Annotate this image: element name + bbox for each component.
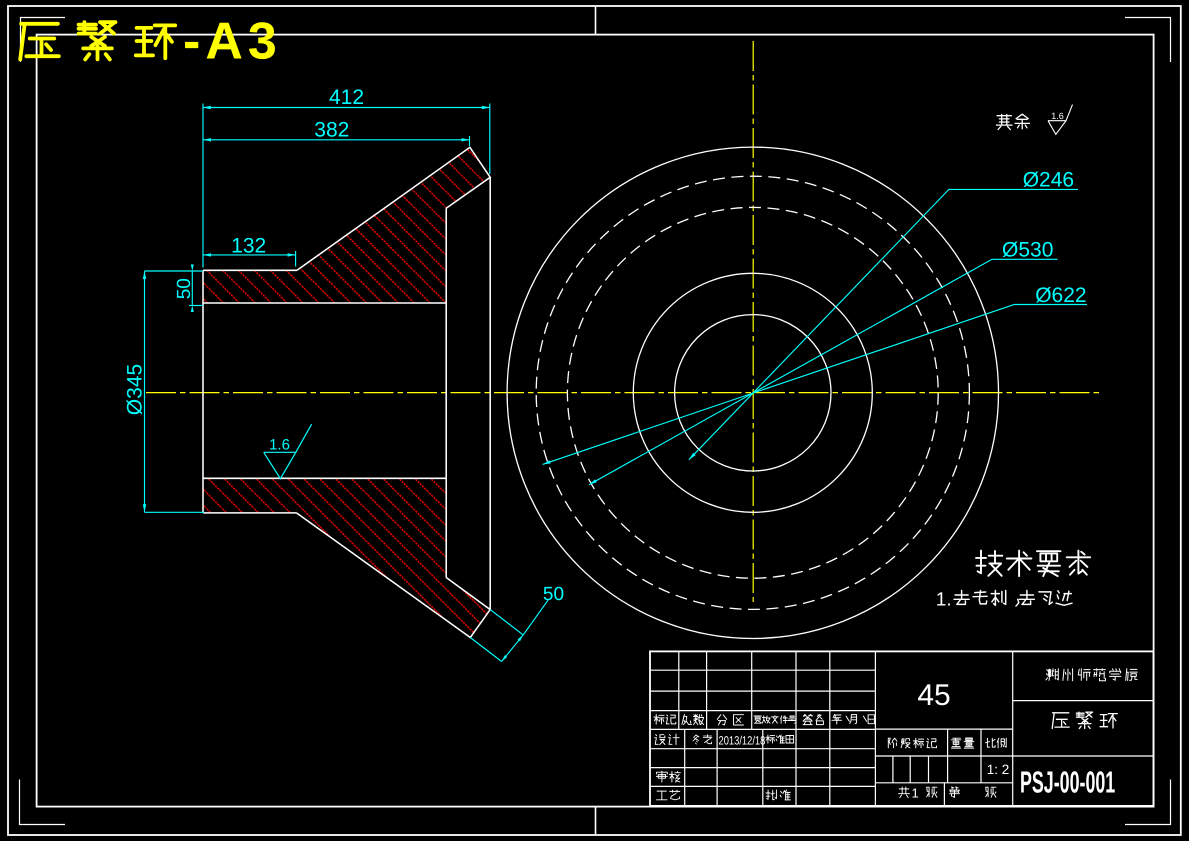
svg-text:2013/12/18: 2013/12/18 <box>719 734 766 748</box>
svg-text:1.6: 1.6 <box>269 437 290 454</box>
svg-text:1: 2: 1: 2 <box>987 762 1010 777</box>
svg-text:Ø246: Ø246 <box>1023 169 1074 192</box>
svg-text:Ø622: Ø622 <box>1035 284 1086 307</box>
svg-text:1.: 1. <box>936 590 952 611</box>
svg-text:Ø345: Ø345 <box>124 364 147 415</box>
svg-text:PSJ-00-001: PSJ-00-001 <box>1020 766 1115 800</box>
svg-text:50: 50 <box>174 278 195 299</box>
svg-text:45: 45 <box>917 679 950 712</box>
svg-text:382: 382 <box>314 119 349 142</box>
svg-text:50: 50 <box>543 584 564 605</box>
svg-text:1: 1 <box>912 786 919 801</box>
svg-text:132: 132 <box>231 235 266 258</box>
svg-text:Ø530: Ø530 <box>1002 239 1053 262</box>
svg-text:1.6: 1.6 <box>1051 111 1064 121</box>
svg-text:-A3: -A3 <box>183 13 282 71</box>
svg-text:412: 412 <box>329 86 364 109</box>
